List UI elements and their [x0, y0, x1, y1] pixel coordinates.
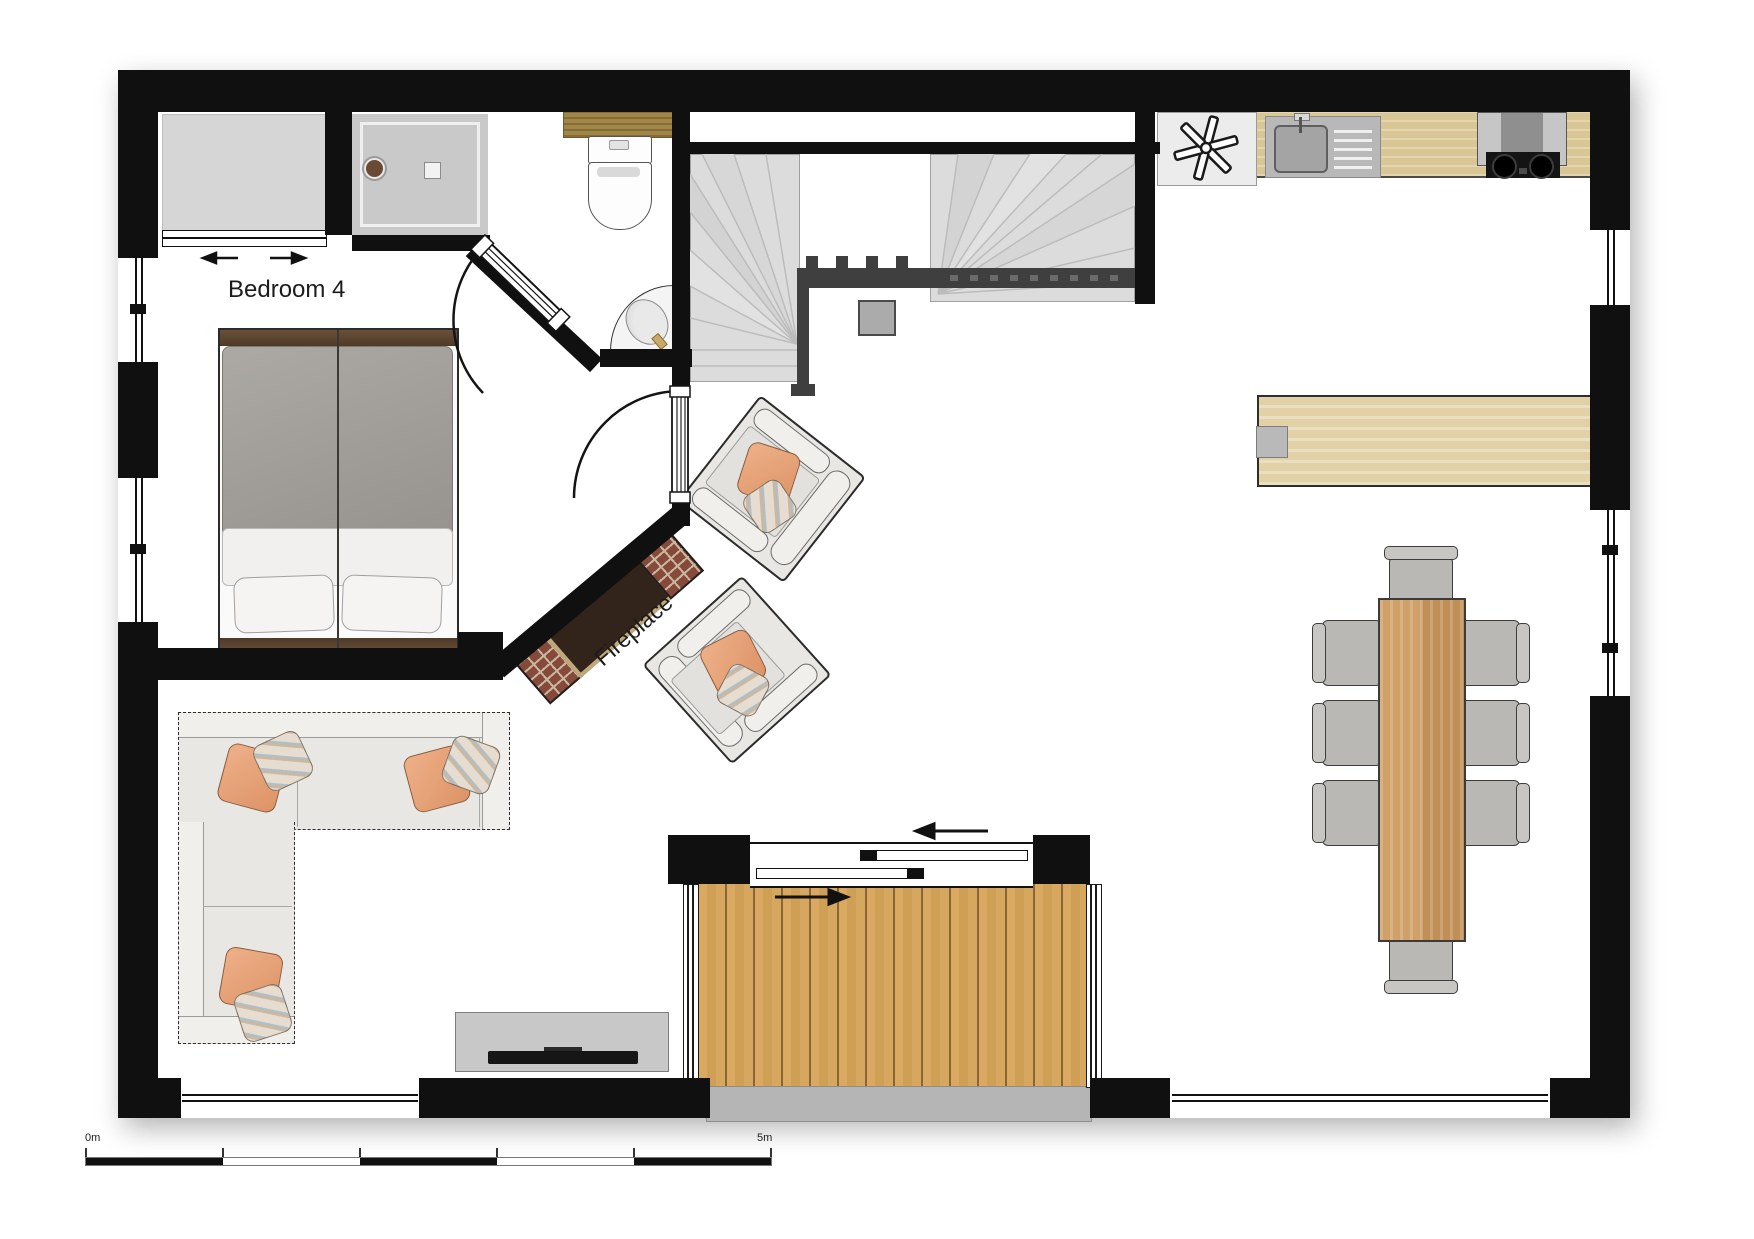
faucet-icon	[1294, 113, 1310, 121]
dining-chair-backrest	[1384, 980, 1458, 994]
wall-bathroom-bottom	[600, 349, 692, 367]
bed-pillow	[233, 574, 335, 633]
terrace-deck	[697, 884, 1086, 1086]
window	[172, 1078, 428, 1118]
wall-bottom	[118, 1078, 172, 1118]
shower-head-icon	[364, 158, 385, 179]
scale-segment	[634, 1158, 771, 1165]
railing-end-cap	[791, 384, 815, 396]
room-label-bedroom4: Bedroom 4	[228, 276, 345, 304]
window	[1160, 1078, 1560, 1118]
railing-post	[896, 256, 908, 268]
track-line	[163, 237, 326, 239]
cushion-seam	[203, 906, 292, 907]
door-leaf-handle	[907, 869, 923, 878]
scale-tick	[359, 1148, 361, 1157]
scale-start-label: 0m	[85, 1132, 100, 1144]
double-bed	[218, 328, 459, 656]
wardrobe	[162, 114, 327, 232]
dining-chair-backrest	[1312, 623, 1326, 683]
stair-railing-return	[797, 268, 809, 388]
bar-table	[1257, 395, 1594, 487]
tv-stand	[544, 1047, 582, 1051]
toilet-flush-button	[609, 140, 629, 150]
wall-bottom	[428, 1078, 710, 1118]
dining-chair-backrest	[1312, 703, 1326, 763]
scale-tick	[222, 1148, 224, 1157]
sliding-door-leaf-upper	[860, 850, 1028, 861]
floor-plan: Bedroom 4	[0, 0, 1754, 1239]
wall-below-shower	[352, 235, 490, 251]
deck-step	[706, 1086, 1092, 1122]
sofa-backrest	[179, 822, 204, 1043]
tv-screen	[488, 1051, 638, 1064]
wall-left	[118, 112, 158, 250]
dining-chair-backrest	[1516, 703, 1530, 763]
scale-segment	[86, 1158, 223, 1165]
dining-chair	[1460, 620, 1520, 686]
dining-chair	[1460, 780, 1520, 846]
railing-post	[836, 256, 848, 268]
wall-left	[118, 370, 158, 470]
wall-left	[118, 630, 158, 1118]
extractor-fan-icon	[1158, 113, 1254, 183]
window	[1590, 503, 1630, 703]
shower	[352, 114, 488, 235]
window	[118, 470, 158, 630]
kitchen-sink-unit	[1265, 116, 1381, 178]
scale-segment	[497, 1158, 634, 1165]
deck-balustrade-left	[683, 884, 699, 1088]
toilet-seat-hinge	[597, 167, 640, 177]
wall-bedroom-bottom	[158, 648, 503, 680]
bed-foot-rail	[220, 330, 457, 346]
stair-railing	[800, 268, 1135, 288]
faucet-stem	[1299, 117, 1302, 133]
cooktop-burner-icon	[1492, 154, 1517, 179]
scale-segment	[360, 1158, 497, 1165]
wall-top	[118, 70, 1630, 112]
bed-pillow	[341, 574, 443, 633]
wall-bottom	[1560, 1078, 1630, 1118]
sliding-door-leaf-lower	[756, 868, 924, 879]
scale-tick	[85, 1148, 87, 1157]
wardrobe-sliding-track	[162, 230, 327, 247]
dining-chair	[1322, 620, 1382, 686]
scale-end-label: 5m	[757, 1132, 772, 1144]
dining-chair-backrest	[1516, 623, 1530, 683]
toilet-cistern	[588, 136, 652, 164]
wall-bedroom-bottom-nub	[458, 632, 503, 648]
railing-dash-detail	[950, 275, 1120, 281]
wall-right	[1590, 112, 1630, 223]
wall-stairwell-top	[690, 142, 1160, 154]
cooktop-burner-icon	[1529, 154, 1554, 179]
wall-right	[1590, 703, 1630, 1118]
staircase-left-flight	[690, 154, 800, 382]
dining-chair	[1322, 780, 1382, 846]
sliding-patio-door	[750, 842, 1033, 888]
extractor-unit	[1157, 112, 1257, 186]
wall-bottom	[1090, 1078, 1160, 1118]
toilet-shelf	[563, 108, 677, 138]
wall-right	[1590, 312, 1630, 503]
scale-tick	[770, 1148, 772, 1157]
dining-chair-backrest	[1384, 546, 1458, 560]
dining-chair	[1322, 700, 1382, 766]
bed-center-split	[337, 330, 339, 654]
shower-control	[424, 162, 441, 179]
wall-wardrobe-shower-divider	[325, 112, 352, 235]
sofa-backrest	[179, 713, 509, 738]
window	[1590, 223, 1630, 312]
cooktop-control	[1519, 168, 1527, 174]
scale-segment	[223, 1158, 360, 1165]
bar-table-support	[1256, 426, 1288, 458]
cooktop	[1486, 152, 1560, 178]
scale-tick	[496, 1148, 498, 1157]
structural-column	[858, 300, 896, 336]
sink-drainer	[1334, 129, 1372, 169]
scale-bar-track	[85, 1157, 772, 1166]
dining-table	[1378, 598, 1466, 942]
window	[118, 250, 158, 370]
wall-deck-right-pier	[1033, 835, 1090, 884]
wall-deck-left-pier	[668, 835, 750, 884]
dining-chair	[1460, 700, 1520, 766]
toilet-bowl	[588, 162, 652, 230]
railing-post	[866, 256, 878, 268]
dining-chair-backrest	[1312, 783, 1326, 843]
scale-tick	[633, 1148, 635, 1157]
deck-balustrade-right	[1086, 884, 1102, 1088]
wall-stairs-kitchen-divider	[1135, 112, 1155, 304]
railing-post	[806, 256, 818, 268]
tv-sideboard	[455, 1012, 669, 1072]
door-leaf-handle	[861, 851, 877, 860]
dining-chair-backrest	[1516, 783, 1530, 843]
